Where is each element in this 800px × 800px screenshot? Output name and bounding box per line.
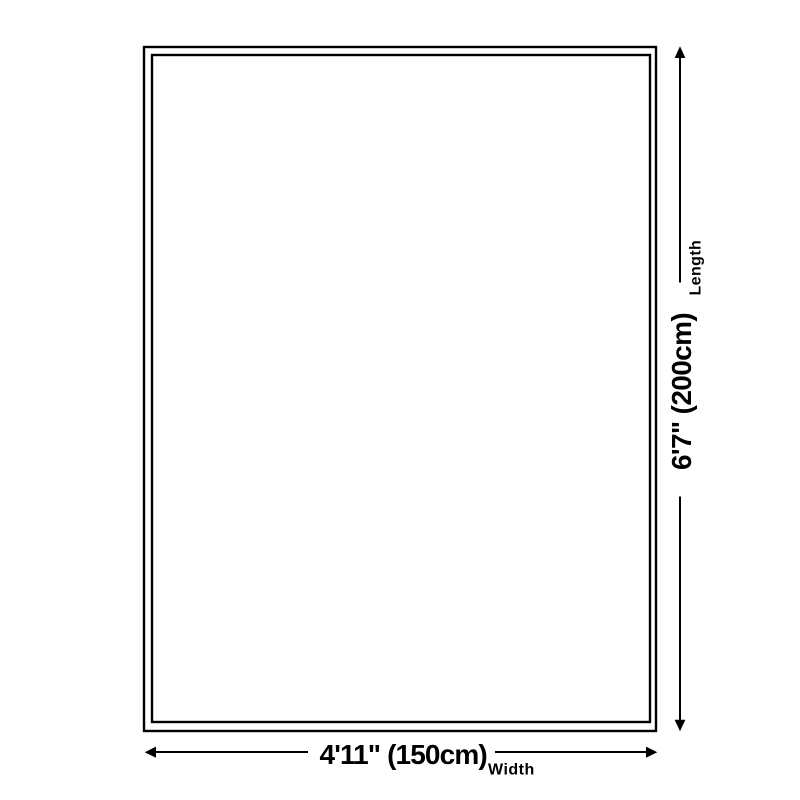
svg-text:6'7" (200cm): 6'7" (200cm) [666,313,697,470]
svg-text:4'11" (150cm): 4'11" (150cm) [320,739,487,770]
svg-text:Length: Length [688,240,705,296]
svg-text:Width: Width [488,762,535,779]
